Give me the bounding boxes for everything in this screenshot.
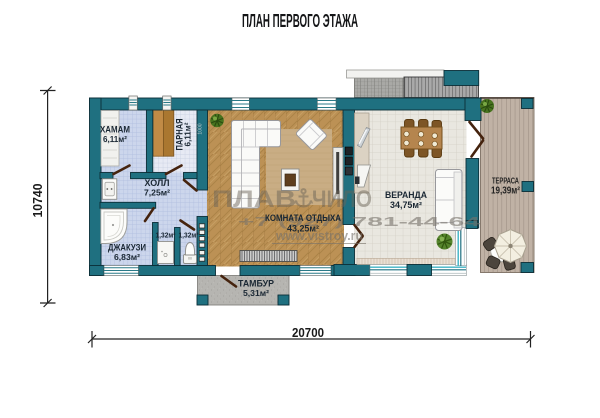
svg-text:ДЖАКУЗИ: ДЖАКУЗИ bbox=[108, 243, 146, 253]
svg-text:1,32м²: 1,32м² bbox=[156, 231, 176, 240]
svg-text:ТЕРРАСА: ТЕРРАСА bbox=[492, 177, 519, 186]
svg-text:43,25м²: 43,25м² bbox=[287, 224, 319, 234]
svg-text:6,83м²: 6,83м² bbox=[114, 252, 140, 262]
svg-text:19,39м²: 19,39м² bbox=[491, 186, 521, 197]
svg-text:ПЛАН ПЕРВОГО ЭТАЖА: ПЛАН ПЕРВОГО ЭТАЖА bbox=[242, 10, 358, 31]
svg-text:ЧИЛО: ЧИЛО bbox=[312, 186, 372, 213]
svg-text:1,32м²: 1,32м² bbox=[179, 231, 199, 240]
svg-text:ПЛАВ: ПЛАВ bbox=[212, 186, 296, 213]
svg-text:7,25м²: 7,25м² bbox=[144, 188, 170, 198]
svg-text:КОМНАТА ОТДЫХА: КОМНАТА ОТДЫХА bbox=[265, 213, 341, 224]
svg-text:10740: 10740 bbox=[30, 184, 45, 218]
svg-text:20700: 20700 bbox=[292, 325, 324, 340]
svg-text:ХОЛЛ: ХОЛЛ bbox=[145, 178, 170, 188]
svg-text:6,11м²: 6,11м² bbox=[183, 122, 193, 146]
svg-text:6,11м²: 6,11м² bbox=[103, 134, 127, 144]
svg-text:34,75м²: 34,75м² bbox=[390, 200, 422, 210]
svg-text:5,31м²: 5,31м² bbox=[243, 288, 269, 298]
svg-text:ТАМБУР: ТАМБУР bbox=[238, 279, 274, 289]
svg-text:1000: 1000 bbox=[197, 123, 203, 134]
svg-text:ХАМАМ: ХАМАМ bbox=[100, 125, 130, 135]
